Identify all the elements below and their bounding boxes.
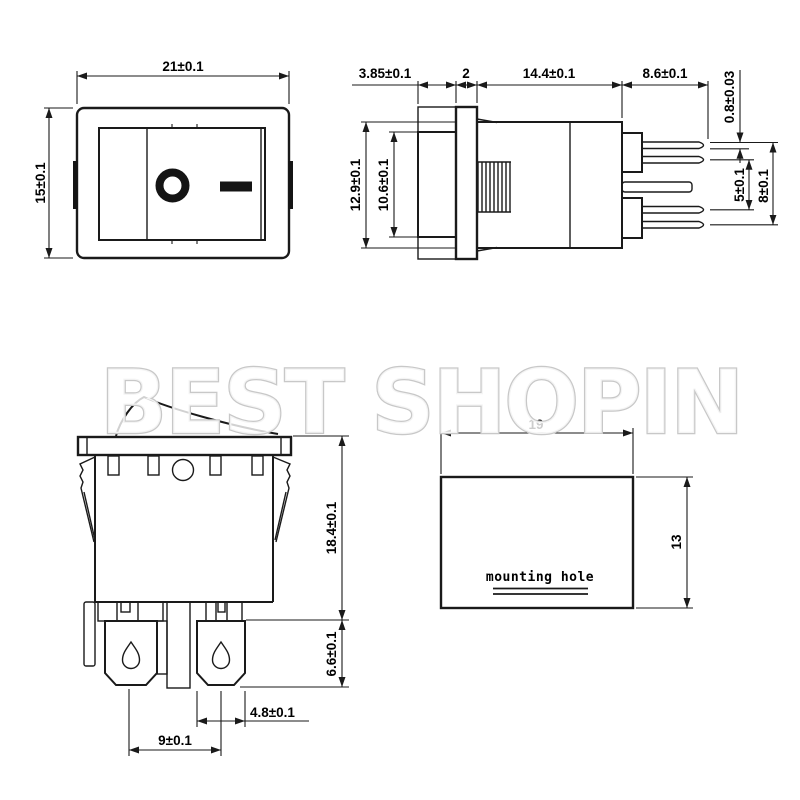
dim-terminal-width: 4.8±0.1 [250, 705, 295, 720]
mounting-hole-label: mounting hole [486, 570, 594, 585]
watermark-text: BEST SHOPIN [100, 351, 742, 454]
on-symbol-dash [220, 182, 252, 192]
dim-hole-height: 13 [669, 534, 684, 550]
dim-pin-span: 8±0.1 [756, 169, 771, 203]
drawing-svg: 21±0.1 15±0.1 [0, 0, 800, 800]
dim-body-height: 12.9±0.1 [348, 158, 363, 211]
dim-front-width: 21±0.1 [162, 59, 204, 74]
front-right-tab [289, 161, 294, 209]
front-left-tab [73, 161, 78, 209]
rocker-switch-dimension-drawing: 21±0.1 15±0.1 [0, 0, 800, 800]
dim-front-height: 15±0.1 [33, 162, 48, 204]
dim-mounted-height: 18.4±0.1 [324, 501, 339, 554]
dim-pin-length: 8.6±0.1 [643, 66, 688, 81]
dim-terminal-pitch: 9±0.1 [158, 733, 192, 748]
dim-rocker-depth: 3.85±0.1 [359, 66, 412, 81]
dim-flange-thickness: 2 [462, 66, 470, 81]
dim-pin-gap: 5±0.1 [732, 168, 747, 202]
dim-rocker-height: 10.6±0.1 [376, 158, 391, 211]
dim-pin-thickness: 0.8±0.03 [722, 70, 737, 123]
dim-terminal-length: 6.6±0.1 [324, 631, 339, 676]
dim-body-depth: 14.4±0.1 [523, 66, 576, 81]
